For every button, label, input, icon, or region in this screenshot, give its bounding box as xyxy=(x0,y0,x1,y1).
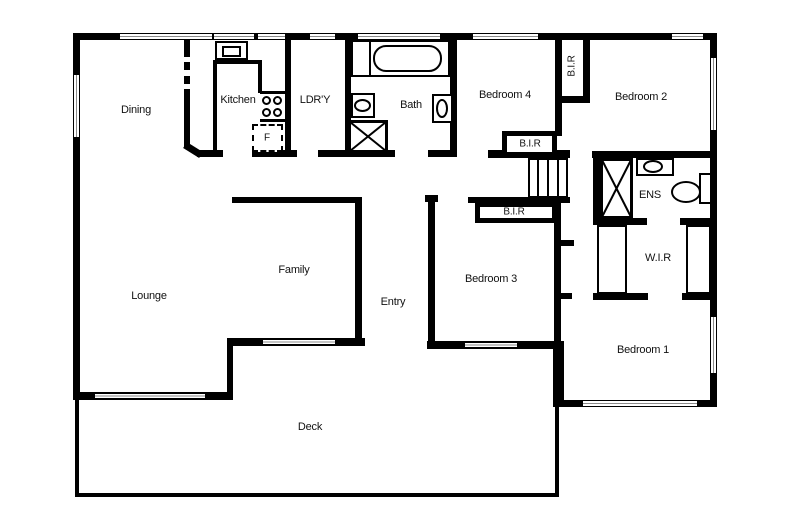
ens-toilet-tank xyxy=(699,173,712,204)
label-kitchen: Kitchen xyxy=(220,94,255,106)
window-bedroom2-top xyxy=(672,34,703,39)
wall-bir-bedroom2-right xyxy=(583,33,590,103)
label-bir-middle: B.I.R xyxy=(519,139,540,150)
label-bedroom1: Bedroom 1 xyxy=(617,344,669,356)
stove-burner-1 xyxy=(262,96,271,105)
kitchen-bench-left xyxy=(213,60,217,150)
stove-burner-4 xyxy=(273,108,282,117)
bath-toilet-bowl xyxy=(436,99,448,118)
label-bath: Bath xyxy=(400,99,422,111)
bath-shower xyxy=(348,120,388,153)
stove-top-edge xyxy=(260,91,285,94)
wall-lounge-step xyxy=(227,338,233,400)
window-family-bottom xyxy=(263,340,335,344)
bathtub-divider xyxy=(369,42,371,75)
window-bedroom3-bottom xyxy=(465,343,517,347)
label-bedroom2: Bedroom 2 xyxy=(615,91,667,103)
kitchen-sink-inner xyxy=(222,46,241,57)
label-dining: Dining xyxy=(121,104,151,116)
wall-dining-kitchen-lower xyxy=(184,89,190,147)
window-bedroom2-right xyxy=(711,58,716,130)
wall-hallway-left xyxy=(554,203,561,348)
wall-deck-right xyxy=(555,407,559,497)
stove-bottom-edge xyxy=(260,119,285,122)
wall-bedroom4-right xyxy=(555,33,562,136)
bathtub xyxy=(373,45,442,72)
label-bedroom4: Bedroom 4 xyxy=(479,89,531,101)
wall-ens-bottom-left xyxy=(600,218,647,225)
stair-tread-1 xyxy=(537,158,539,198)
label-bir-bedroom3: B.I.R xyxy=(503,207,524,218)
ens-shower xyxy=(600,158,633,219)
wall-hallway-stub-lower xyxy=(561,293,572,299)
label-bir-bedroom2: B.I.R xyxy=(567,55,578,76)
window-lounge-bottom xyxy=(95,394,205,398)
floor-plan-canvas: Dining Kitchen LDR'Y Bath Bedroom 4 Bedr… xyxy=(0,0,790,527)
window-dining-left xyxy=(74,75,79,137)
label-fridge: F xyxy=(264,133,270,144)
stove-burner-2 xyxy=(273,96,282,105)
label-family: Family xyxy=(278,264,309,276)
wall-bir-bedroom2-bottom xyxy=(555,96,590,103)
stove-burner-3 xyxy=(262,108,271,117)
kitchen-bench-top xyxy=(213,60,262,64)
window-bedroom1-right xyxy=(711,317,716,373)
label-bedroom3: Bedroom 3 xyxy=(465,273,517,285)
window-kitchen-top xyxy=(258,34,285,39)
ens-vanity-basin xyxy=(643,160,663,173)
wall-hallway-stub-upper xyxy=(561,240,574,246)
wall-bedroom3-left xyxy=(428,195,435,348)
window-kitchen-sink xyxy=(214,34,254,39)
wall-kitchen-bottom-left xyxy=(197,150,223,157)
wall-bedroom1-left xyxy=(553,341,564,407)
window-dining-top xyxy=(120,34,212,39)
label-entry: Entry xyxy=(381,296,406,308)
label-laundry: LDR'Y xyxy=(300,94,330,106)
wall-dining-kitchen-dash1 xyxy=(184,62,190,70)
wall-bedroom2-bottom xyxy=(592,151,710,158)
wir-robe-left xyxy=(597,225,627,294)
wall-kitchen-laundry xyxy=(285,40,291,157)
wall-wir-bottom-right xyxy=(682,293,710,300)
wall-dining-kitchen-dash2 xyxy=(184,76,190,84)
wall-ens-bottom-right xyxy=(680,218,710,225)
stair-tread-2 xyxy=(547,158,549,198)
ens-toilet-bowl xyxy=(671,181,701,203)
wall-deck-left xyxy=(75,400,79,497)
diagonal-details xyxy=(0,0,790,527)
stair-tread-3 xyxy=(557,158,559,198)
label-wir: W.I.R xyxy=(645,252,671,264)
wall-deck-bottom xyxy=(75,493,559,497)
wall-family-top xyxy=(232,197,362,203)
label-deck: Deck xyxy=(298,421,322,433)
wall-family-right xyxy=(355,197,362,345)
bath-vanity-basin xyxy=(354,99,371,112)
wall-ens-left xyxy=(593,152,600,225)
window-bedroom1-bottom xyxy=(583,401,697,406)
label-ens: ENS xyxy=(639,189,661,201)
window-bath-top xyxy=(358,34,440,39)
kitchen-bench-right xyxy=(258,60,262,93)
wall-laundry-bottom xyxy=(285,150,297,157)
window-laundry-top xyxy=(310,34,335,39)
window-bedroom4-top xyxy=(473,34,538,39)
wall-wir-bottom-left xyxy=(593,293,648,300)
wir-robe-right xyxy=(686,225,711,294)
label-lounge: Lounge xyxy=(131,290,167,302)
